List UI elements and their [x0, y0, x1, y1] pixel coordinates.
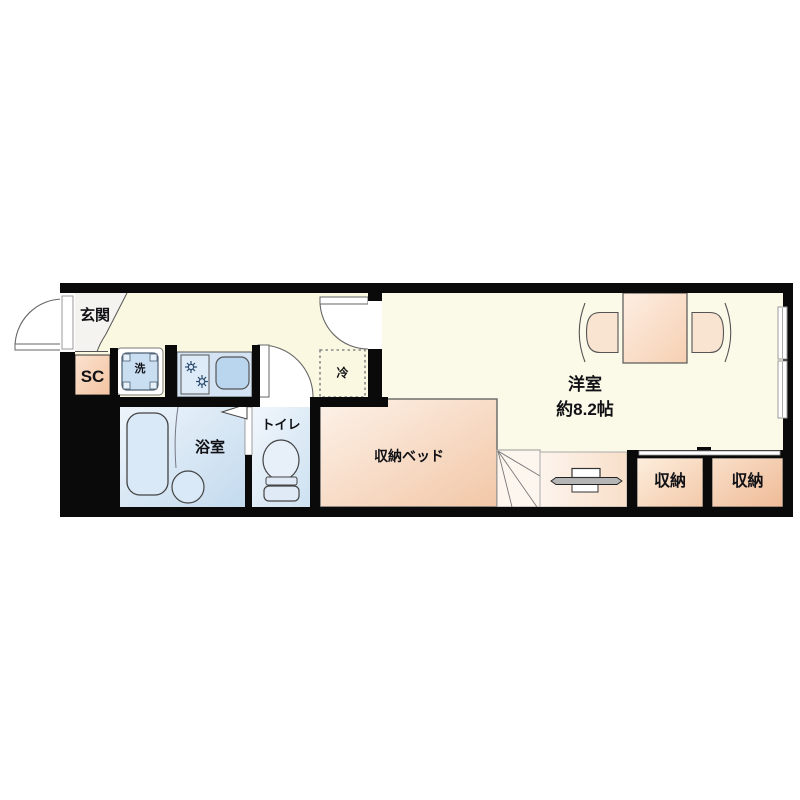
bathtub-icon	[127, 413, 168, 495]
storage-closet-1-label: 収納	[637, 470, 703, 494]
toilet-icon	[263, 440, 299, 501]
wall-desk-closet	[627, 450, 637, 507]
wall-room-lower	[368, 349, 382, 397]
wall-hall-bed	[313, 397, 388, 407]
window-icon	[778, 307, 787, 418]
western-room-size-label: 約8.2帖	[523, 397, 647, 421]
washer-corner	[123, 382, 130, 389]
shoe-closet-label: SC	[75, 361, 110, 391]
wall-block-lower-left	[75, 395, 120, 507]
washing-machine-label: 洗	[117, 360, 163, 378]
wall-bath-toilet	[245, 455, 252, 507]
toilet-label: トイレ	[252, 415, 310, 433]
table-icon	[623, 293, 687, 363]
wall-kitchen-door	[252, 345, 260, 397]
bathroom-label: 浴室	[178, 437, 242, 457]
wall-top	[60, 283, 793, 293]
bath-drain-icon	[172, 471, 204, 503]
floor-plan-canvas: 玄関 SC 洗 冷 浴室 トイレ 収納ベッド 洋室 約8.2帖 収納 収納	[0, 0, 800, 800]
wall-closet-divider	[703, 454, 712, 507]
wall-washer-kitchen	[165, 345, 177, 397]
closet-sliding-door	[639, 451, 780, 455]
wall-toilet-bed	[310, 397, 320, 507]
storage-closet-2-label: 収納	[712, 470, 783, 494]
wall-left	[60, 352, 75, 507]
refrigerator-label: 冷	[320, 364, 365, 382]
wall-bottom	[60, 507, 793, 517]
western-room-name-label: 洋室	[523, 372, 647, 396]
entrance-door	[15, 293, 75, 352]
washer-corner	[150, 382, 157, 389]
wall-room-upper	[368, 283, 382, 301]
storage-bed-label: 収納ベッド	[328, 446, 490, 466]
wall-bath-top	[110, 397, 260, 407]
floor-plan-drawing	[0, 0, 800, 800]
bed-steps-icon	[497, 450, 540, 507]
sink-icon	[216, 357, 249, 389]
stove-box	[181, 355, 209, 394]
entrance-label: 玄関	[68, 304, 122, 326]
